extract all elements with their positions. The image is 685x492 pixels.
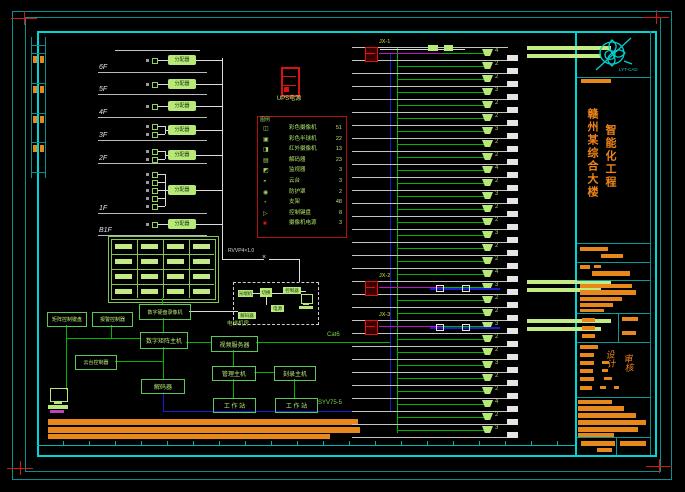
camera-wire	[397, 92, 484, 93]
floor-tag	[507, 250, 518, 256]
computer-icon	[50, 388, 68, 402]
wire	[186, 342, 211, 343]
ruler-tick	[479, 441, 480, 445]
white-wire	[189, 311, 238, 312]
junction-box-icon	[366, 53, 375, 54]
floor-line	[352, 398, 508, 399]
monitor-cell-bar	[193, 274, 210, 279]
legend-qty: 2	[328, 190, 342, 196]
ruler-tick	[505, 441, 506, 445]
titleblock-text-bar	[580, 353, 594, 357]
device-wire	[158, 151, 165, 152]
floor-line	[352, 190, 508, 191]
floor-tag	[507, 172, 518, 178]
floor-tag	[507, 159, 518, 165]
camera-wire	[397, 339, 484, 340]
device-tick	[146, 59, 149, 62]
titleblock-text-bar	[580, 369, 593, 373]
titleblock-text-bar	[622, 331, 636, 335]
legend-icon-0: ◫	[263, 126, 269, 132]
legend-qty: 13	[328, 147, 342, 153]
floor-tag	[507, 289, 518, 295]
legend-icon-8: ▷	[263, 211, 268, 217]
ladder-mark	[33, 116, 37, 123]
monitor-cell-bar	[193, 244, 210, 249]
camera-count: 2	[495, 412, 498, 418]
titleblock-text-bar	[582, 318, 595, 322]
floor-line	[352, 242, 508, 243]
line-device	[436, 324, 444, 331]
ups-icon	[281, 67, 300, 97]
wire	[233, 379, 234, 398]
floor-line	[352, 99, 508, 100]
recorder-box: 刻录主机	[274, 366, 316, 381]
signature-1: 设计	[603, 349, 618, 368]
camera-count: 3	[495, 360, 498, 366]
legend-qty: 3	[328, 168, 342, 174]
floor-line	[352, 229, 508, 230]
floor-label: B1F	[99, 227, 112, 234]
titleblock-text-bar	[597, 448, 612, 452]
note-bar	[48, 434, 330, 439]
ladder-mark	[40, 145, 44, 152]
ruler-tick	[219, 441, 220, 445]
floor-line	[352, 177, 508, 178]
pill-to-trunk-wire	[196, 84, 222, 85]
ruler-tick	[63, 441, 64, 445]
merge-to-pill-wire	[165, 190, 168, 191]
pill-to-trunk-wire	[196, 60, 222, 61]
ruler-tick	[141, 441, 142, 445]
camera-count: 3	[495, 230, 498, 236]
legend-qty: 48	[328, 200, 342, 206]
camera-count: 2	[495, 256, 498, 262]
device-tick	[146, 197, 149, 200]
junction-label: JX-1	[379, 40, 390, 46]
junction-box-icon	[365, 281, 378, 296]
camera-wire	[397, 235, 484, 236]
titleblock-text-bar	[581, 79, 611, 83]
device-icon	[152, 188, 158, 194]
floor-line	[98, 94, 207, 95]
camera-count: 2	[495, 334, 498, 340]
white-wire	[269, 259, 299, 260]
blue-cable	[163, 392, 164, 411]
legend-name: 摄像机电源	[289, 221, 317, 227]
wall-row-line	[111, 254, 214, 255]
ruler-tick	[531, 441, 532, 445]
white-wire	[222, 246, 223, 259]
floor-tag	[507, 406, 518, 412]
cad-canvas[interactable]: 6F分配器5F分配器4F分配器3F分配器2F分配器1F分配器B1F分配器 数字硬…	[0, 0, 685, 492]
camera-count: 2	[495, 308, 498, 314]
titleblock-text-bar	[622, 317, 638, 321]
titleblock-text-bar	[582, 326, 595, 330]
titleblock-divider	[577, 243, 650, 244]
titleblock-text-bar	[580, 265, 590, 269]
legend-name: 支架	[289, 200, 300, 206]
camera-wire	[397, 378, 484, 379]
legend-qty: 22	[328, 137, 342, 143]
titleblock-divider	[577, 77, 650, 78]
floor-line	[98, 213, 207, 214]
project-name-column-2: 智能化工程	[604, 124, 615, 189]
monitor-cell-bar	[115, 244, 132, 249]
corner-cross	[24, 11, 25, 25]
floor-tag	[507, 380, 518, 386]
camera-wire	[397, 118, 484, 119]
ruler-tick	[453, 441, 454, 445]
wire	[233, 350, 234, 366]
titleblock-text-bar	[580, 247, 608, 251]
titleblock-text-bar	[580, 303, 613, 307]
titleblock-text-bar	[580, 361, 594, 365]
camera-count: 3	[495, 425, 498, 431]
monitor-cell-bar	[167, 289, 184, 294]
ladder-rung	[31, 45, 46, 46]
device-icon	[152, 196, 158, 202]
camera-wire	[397, 391, 484, 392]
junction-box-icon	[365, 47, 378, 62]
camera-count: 4	[495, 165, 498, 171]
legend-qty: 3	[328, 179, 342, 185]
terminal-bar	[527, 54, 601, 58]
titleblock-cell-line	[618, 313, 619, 342]
floor-label: 3F	[99, 132, 107, 139]
floor-line	[352, 112, 508, 113]
floor-distributor-pill: 分配器	[168, 150, 196, 160]
floor-line	[352, 203, 508, 204]
floor-label: 1F	[99, 205, 107, 212]
titleblock-text-bar	[594, 265, 601, 268]
device-wire	[158, 174, 165, 175]
cable-label-rvvp: RVVP4×1.0	[228, 249, 254, 254]
floor-line	[352, 268, 508, 269]
monitor-cell-bar	[141, 289, 158, 294]
riser-blue-trunk	[390, 54, 391, 411]
device-tick	[146, 181, 149, 184]
device-icon	[152, 104, 158, 110]
titleblock-text-bar	[578, 433, 614, 437]
device-wire	[158, 126, 165, 127]
camera-count: 3	[495, 87, 498, 93]
ladder-mark	[40, 86, 44, 93]
ups-icon	[284, 87, 289, 92]
floor-label: 4F	[99, 109, 107, 116]
workstation-2: 工 作 站	[275, 398, 318, 413]
floor-label: 2F	[99, 155, 107, 162]
ruler-tick	[401, 441, 402, 445]
decoder-box: 解码器	[141, 379, 185, 394]
ups-label: UPS电源	[262, 96, 316, 102]
pill-to-trunk-wire	[196, 106, 222, 107]
titleblock-divider	[577, 280, 650, 281]
corner-cross	[20, 461, 21, 475]
floor-tag	[507, 302, 518, 308]
camera-count: 4	[495, 269, 498, 275]
titleblock-text-bar	[580, 284, 632, 288]
ruler-tick	[323, 441, 324, 445]
titleblock-divider	[577, 342, 650, 343]
junction-box-icon	[366, 287, 375, 288]
floor-line	[352, 216, 508, 217]
legend-name: 控制键盘	[289, 211, 311, 217]
cable-label-syv: SYV75-5	[318, 400, 342, 406]
ladder-rung	[31, 53, 46, 54]
ladder-rung	[31, 142, 46, 143]
device-icon	[152, 132, 158, 138]
titleblock-divider	[577, 262, 650, 263]
mini-computer-icon	[303, 303, 309, 305]
legend-icon-3: ▤	[263, 158, 269, 164]
line-device	[436, 285, 444, 292]
floor-tag	[507, 81, 518, 87]
ladder-mark	[40, 116, 44, 123]
camera-wire	[397, 79, 484, 80]
titleblock-text-bar	[578, 413, 636, 418]
floor-tag	[507, 146, 518, 152]
ladder-edge	[31, 37, 32, 178]
monitor-cell-bar	[193, 259, 210, 264]
camera-wire	[397, 66, 484, 67]
device-wire	[158, 224, 168, 225]
titleblock-divider	[577, 437, 650, 438]
camera-wire	[397, 196, 484, 197]
floor-tag	[507, 276, 518, 282]
legend-name: 彩色半球机	[289, 137, 317, 143]
ruler-tick	[297, 441, 298, 445]
signature-2: 审核	[621, 353, 636, 372]
floor-tag	[507, 211, 518, 217]
floor-line	[352, 125, 508, 126]
switch-box: 切换	[260, 288, 272, 297]
camera-wire	[397, 157, 484, 158]
merge-to-pill-wire	[165, 130, 168, 131]
ladder-rung	[31, 113, 46, 114]
titleblock-cell-line	[616, 437, 617, 455]
titleblock-text-bar	[580, 297, 622, 301]
device-icon	[152, 222, 158, 228]
riser-trunk	[222, 58, 223, 246]
line-device	[462, 324, 470, 331]
camera-wire	[397, 209, 484, 210]
line-device	[444, 45, 453, 51]
ruler-tick	[245, 441, 246, 445]
wire	[254, 372, 274, 373]
elevator-room-caption: 电梯机房	[227, 322, 249, 328]
titleblock-text-bar	[578, 427, 638, 432]
ladder-rung	[31, 172, 46, 173]
device-icon	[152, 82, 158, 88]
floor-tag	[507, 68, 518, 74]
floor-tag	[507, 367, 518, 373]
device-icon	[152, 204, 158, 210]
legend-icon-6: ◉	[263, 190, 268, 196]
floor-tag	[507, 224, 518, 230]
legend-icon-1: ▣	[263, 137, 269, 143]
ups-icon	[283, 85, 296, 86]
floor-tag	[507, 341, 518, 347]
alarm-box: 报警控制器	[92, 312, 133, 327]
device-icon	[152, 172, 158, 178]
camera-count: 4	[495, 48, 498, 54]
titleblock-text-bar	[580, 386, 592, 390]
legend-name: 云台	[289, 179, 300, 185]
floor-line	[352, 151, 508, 152]
white-wire	[299, 259, 300, 282]
floor-line	[352, 86, 508, 87]
monitor-cell-bar	[141, 259, 158, 264]
ruler-tick	[427, 441, 428, 445]
pill-to-trunk-wire	[196, 155, 222, 156]
floor-label: 6F	[99, 64, 107, 71]
floor-line	[352, 255, 508, 256]
merge-to-pill-wire	[165, 155, 168, 156]
wall-row-line	[111, 269, 214, 270]
camera-count: 2	[495, 152, 498, 158]
ruler-tick	[375, 441, 376, 445]
floor-distributor-pill: 分配器	[168, 101, 196, 111]
camera-wire	[397, 131, 484, 132]
device-wire	[158, 198, 165, 199]
floor-tag	[507, 185, 518, 191]
junction-box-icon	[365, 320, 378, 335]
device-wire	[158, 106, 168, 107]
titleblock-text-bar	[614, 386, 619, 389]
legend-header: 图例	[260, 118, 270, 123]
camera-count: 2	[495, 295, 498, 301]
device-icon	[152, 157, 158, 163]
legend-name: 防护罩	[289, 190, 306, 196]
video-server-box: 视频服务器	[211, 336, 258, 352]
wire	[66, 338, 140, 339]
floor-tag	[507, 432, 518, 438]
legend-name: 解码器	[289, 158, 306, 164]
floor-distributor-pill: 分配器	[168, 125, 196, 135]
device-tick	[146, 223, 149, 226]
floor-line	[352, 411, 508, 412]
camera-count: 2	[495, 178, 498, 184]
legend-icon-5: ◓	[263, 179, 267, 185]
floor-tag	[507, 237, 518, 243]
device-wire	[158, 159, 165, 160]
corner-cross	[659, 459, 660, 473]
ups-icon	[283, 76, 296, 77]
floor-line	[352, 164, 508, 165]
ladder-rung	[31, 83, 46, 84]
titleblock-text-bar	[600, 386, 606, 389]
device-wire	[158, 60, 168, 61]
wire	[294, 379, 295, 398]
floor-distributor-pill: 分配器	[168, 79, 196, 89]
white-wire	[272, 293, 283, 294]
logo-caption: LYT-CAD	[619, 68, 638, 73]
device-wire	[158, 182, 165, 183]
device-tick	[146, 189, 149, 192]
monitor-cell-bar	[115, 274, 132, 279]
device-tick	[146, 173, 149, 176]
wire	[163, 347, 164, 379]
floor-tag	[507, 354, 518, 360]
pill-to-trunk-wire	[196, 224, 222, 225]
legend-qty: 51	[328, 126, 342, 132]
junction-box-icon	[366, 326, 375, 327]
titleblock-text-bar	[620, 441, 646, 446]
ptz-box: 云台控制器	[75, 355, 117, 370]
device-wire	[158, 134, 165, 135]
cable-label-cat6: Cat6	[327, 332, 340, 338]
device-wire	[158, 190, 165, 191]
project-name-column-1: 赣州某综合大楼	[586, 108, 597, 199]
bottom-ruler	[37, 445, 575, 446]
camera-wire	[397, 430, 484, 431]
dvr-box: 数字硬盘录像机	[139, 304, 191, 320]
floor-line	[352, 424, 508, 425]
floor-tag	[507, 419, 518, 425]
titleblock-text-bar	[602, 369, 608, 372]
ladder-mark	[33, 145, 37, 152]
camera-count: 2	[495, 139, 498, 145]
ladder-mark	[40, 56, 44, 63]
camera-count: 2	[495, 373, 498, 379]
device-wire	[158, 84, 168, 85]
floor-tag	[507, 315, 518, 321]
titleblock-text-bar	[581, 441, 615, 446]
pill-to-trunk-wire	[196, 190, 222, 191]
floor-line	[352, 307, 508, 308]
computer-icon	[54, 401, 62, 404]
ruler-tick	[557, 441, 558, 445]
camera-wire	[397, 170, 484, 171]
floor-line	[98, 140, 207, 141]
titleblock-text-bar	[582, 334, 595, 338]
camera-wire	[397, 352, 484, 353]
line-device	[428, 45, 438, 51]
camera-wire	[397, 222, 484, 223]
camera-wire	[397, 261, 484, 262]
floor-line	[352, 346, 508, 347]
floor-line	[352, 385, 508, 386]
floor-tag	[507, 107, 518, 113]
floor-line	[98, 163, 207, 164]
titleblock-text-bar	[604, 377, 612, 380]
legend-icon-4: ◩	[263, 168, 269, 174]
monitor-cell-bar	[115, 289, 132, 294]
legend-name: 监视器	[289, 168, 306, 174]
keyboard-box: 矩阵控制键盘	[47, 312, 87, 327]
wire	[256, 342, 390, 343]
titleblock-text-bar	[578, 406, 624, 411]
corner-cross	[656, 10, 657, 24]
titleblock-divider	[577, 313, 650, 314]
white-wire	[266, 297, 267, 305]
floor-tag	[507, 55, 518, 61]
floor-tag	[507, 328, 518, 334]
monitor-cell-bar	[193, 289, 210, 294]
device-tick	[146, 83, 149, 86]
camera-count: 2	[495, 61, 498, 67]
optical-box: 光端机	[238, 290, 253, 297]
device-tick	[146, 150, 149, 153]
ruler-tick	[89, 441, 90, 445]
junction-label: JX-3	[379, 313, 390, 319]
camera-count: 3	[495, 126, 498, 132]
monitor-cell-bar	[167, 274, 184, 279]
camera-wire	[397, 404, 484, 405]
floor-line	[115, 50, 200, 51]
monitor-cell-bar	[167, 244, 184, 249]
camera-count: 4	[495, 399, 498, 405]
